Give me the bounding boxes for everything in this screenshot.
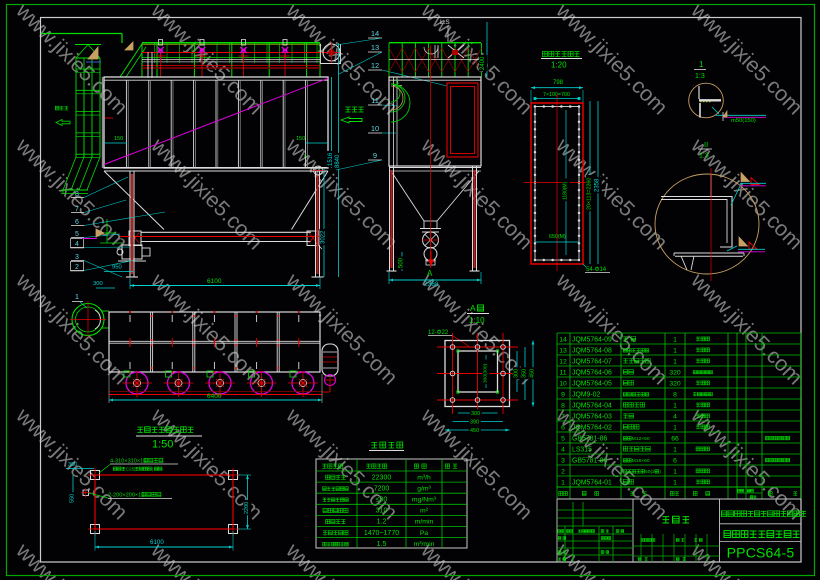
svg-text:320: 320	[669, 370, 681, 377]
svg-text:1:50: 1:50	[152, 439, 173, 451]
svg-text:300: 300	[471, 411, 480, 417]
svg-text:10: 10	[371, 124, 379, 133]
svg-text:1470~1770: 1470~1770	[364, 530, 399, 537]
svg-text:150: 150	[296, 136, 305, 142]
svg-text:m³/min: m³/min	[414, 541, 435, 548]
svg-text:2-200×200×10: 2-200×200×10	[108, 493, 144, 499]
svg-text:C25|: C25|	[126, 467, 136, 472]
svg-text:M16×60: M16×60	[632, 458, 650, 464]
svg-text:320: 320	[669, 381, 681, 388]
svg-text:300: 300	[68, 462, 77, 468]
svg-text:JQM5764-03: JQM5764-03	[572, 414, 612, 421]
svg-text:1.5: 1.5	[377, 541, 387, 548]
svg-text:450: 450	[470, 428, 479, 434]
svg-text:50(2: 50(2	[645, 469, 655, 475]
svg-text:950: 950	[112, 265, 122, 271]
svg-text:II: II	[704, 140, 708, 149]
svg-text:11: 11	[559, 370, 566, 377]
svg-text:11: 11	[371, 96, 379, 105]
svg-text:7200: 7200	[374, 485, 390, 492]
svg-text:JQM5764-05: JQM5764-05	[572, 381, 612, 388]
svg-text:500: 500	[399, 257, 405, 268]
svg-text:m³/h: m³/h	[417, 474, 431, 481]
svg-text:300(300): 300(300)	[483, 363, 489, 383]
svg-text:m50(150): m50(150)	[731, 118, 756, 124]
svg-text:1:3: 1:3	[695, 73, 705, 80]
svg-text:6: 6	[673, 458, 677, 465]
svg-text:1516: 1516	[328, 152, 334, 166]
svg-text:Pa: Pa	[420, 530, 429, 537]
svg-text:1: 1	[673, 403, 677, 410]
svg-text:4: 4	[673, 414, 677, 421]
svg-text:JQM5764-08: JQM5764-08	[572, 348, 612, 355]
svg-text:JQM5764-09: JQM5764-09	[572, 337, 612, 344]
svg-text:2: 2	[561, 469, 565, 476]
svg-text:JQM5764-02: JQM5764-02	[572, 425, 612, 432]
svg-text:22300: 22300	[372, 474, 392, 481]
svg-text:1: 1	[75, 292, 79, 301]
svg-text:6: 6	[561, 425, 565, 432]
svg-text:350: 350	[522, 369, 528, 378]
svg-text:12: 12	[371, 61, 379, 70]
svg-text:650(M): 650(M)	[549, 234, 566, 240]
svg-text:7: 7	[75, 206, 79, 213]
svg-text:A: A	[470, 303, 476, 313]
svg-text:2400: 2400	[480, 56, 486, 70]
svg-text:8: 8	[673, 392, 677, 399]
svg-text:14: 14	[559, 337, 567, 344]
svg-text:5: 5	[561, 436, 565, 443]
svg-text:20×113=2260: 20×113=2260	[587, 178, 593, 210]
svg-text:LS315: LS315	[572, 447, 592, 454]
svg-text:3: 3	[75, 254, 79, 261]
svg-text:A: A	[427, 269, 433, 278]
svg-text:1: 1	[673, 480, 677, 487]
svg-text:2200: 2200	[244, 502, 250, 514]
svg-text:JQM5764-04: JQM5764-04	[572, 403, 612, 410]
svg-text:1180(M): 1180(M)	[563, 181, 569, 200]
svg-text:1: 1	[673, 348, 677, 355]
svg-text:10: 10	[559, 381, 567, 388]
svg-text:M12×50: M12×50	[632, 436, 650, 442]
svg-text:m/min: m/min	[415, 519, 434, 526]
svg-text:6100: 6100	[207, 278, 222, 285]
svg-text:300: 300	[93, 281, 103, 287]
svg-text:1.2: 1.2	[377, 519, 387, 526]
svg-text:5: 5	[75, 231, 79, 238]
svg-text:3: 3	[561, 458, 565, 465]
svg-text:7×100=700: 7×100=700	[543, 92, 570, 98]
svg-text:54-Φ14: 54-Φ14	[586, 267, 607, 273]
svg-text:mg/Nm³: mg/Nm³	[412, 497, 437, 504]
svg-text:2358: 2358	[595, 178, 601, 192]
svg-text:1: 1	[673, 425, 677, 432]
svg-text:4-310×310×16: 4-310×310×16	[110, 459, 146, 465]
svg-text:JQM5764-07: JQM5764-07	[572, 359, 612, 366]
svg-text:66: 66	[671, 436, 679, 443]
svg-text:1:20: 1:20	[551, 61, 567, 70]
svg-text:450: 450	[530, 369, 536, 378]
svg-text:g/m³: g/m³	[417, 485, 431, 492]
svg-text:4: 4	[561, 447, 565, 454]
svg-text:1: 1	[561, 480, 565, 487]
svg-text:JQM5764-01: JQM5764-01	[572, 480, 612, 487]
svg-text:|: |	[152, 467, 153, 472]
svg-text:1: 1	[673, 469, 677, 476]
svg-text:1:10: 1:10	[469, 316, 485, 325]
svg-text:≤30: ≤30	[376, 497, 388, 504]
svg-text:PPCS64-5: PPCS64-5	[727, 545, 795, 561]
svg-text:GB5781-86: GB5781-86	[572, 458, 607, 465]
svg-text:1: 1	[673, 359, 677, 366]
svg-text:GB5781-86: GB5781-86	[572, 436, 607, 443]
svg-text:6100: 6100	[150, 539, 164, 546]
svg-text:8840: 8840	[335, 154, 341, 168]
svg-text:2368: 2368	[424, 281, 439, 288]
svg-text:JQM9-02: JQM9-02	[572, 392, 601, 399]
svg-text:JQM5764-06: JQM5764-06	[572, 370, 612, 377]
svg-text:7: 7	[561, 414, 565, 421]
svg-text:1:3: 1:3	[699, 153, 709, 160]
svg-text:390: 390	[470, 420, 479, 426]
svg-text:2: 2	[75, 264, 79, 271]
svg-text:3022: 3022	[321, 230, 327, 244]
svg-text:12: 12	[559, 359, 567, 366]
svg-text:13: 13	[559, 348, 567, 355]
svg-text:1: 1	[699, 60, 704, 69]
svg-text:m²: m²	[420, 508, 429, 515]
svg-text:9: 9	[561, 392, 565, 399]
svg-text:8: 8	[561, 403, 565, 410]
svg-text:300: 300	[514, 369, 520, 378]
svg-text:4: 4	[75, 241, 79, 248]
svg-text:9: 9	[373, 151, 377, 160]
svg-text:6400: 6400	[207, 393, 222, 400]
svg-text:14: 14	[371, 29, 379, 38]
svg-text:550: 550	[69, 494, 75, 503]
svg-text:L.S: L.S	[440, 19, 450, 26]
svg-text:7: 7	[303, 154, 306, 160]
svg-text:798: 798	[553, 80, 564, 86]
svg-text:150: 150	[114, 136, 123, 142]
svg-text:6: 6	[75, 219, 79, 226]
svg-text:13: 13	[371, 43, 379, 52]
svg-text:310: 310	[376, 508, 388, 515]
svg-text:8: 8	[75, 191, 79, 198]
svg-text:1: 1	[673, 447, 677, 454]
svg-text:1: 1	[673, 337, 677, 344]
